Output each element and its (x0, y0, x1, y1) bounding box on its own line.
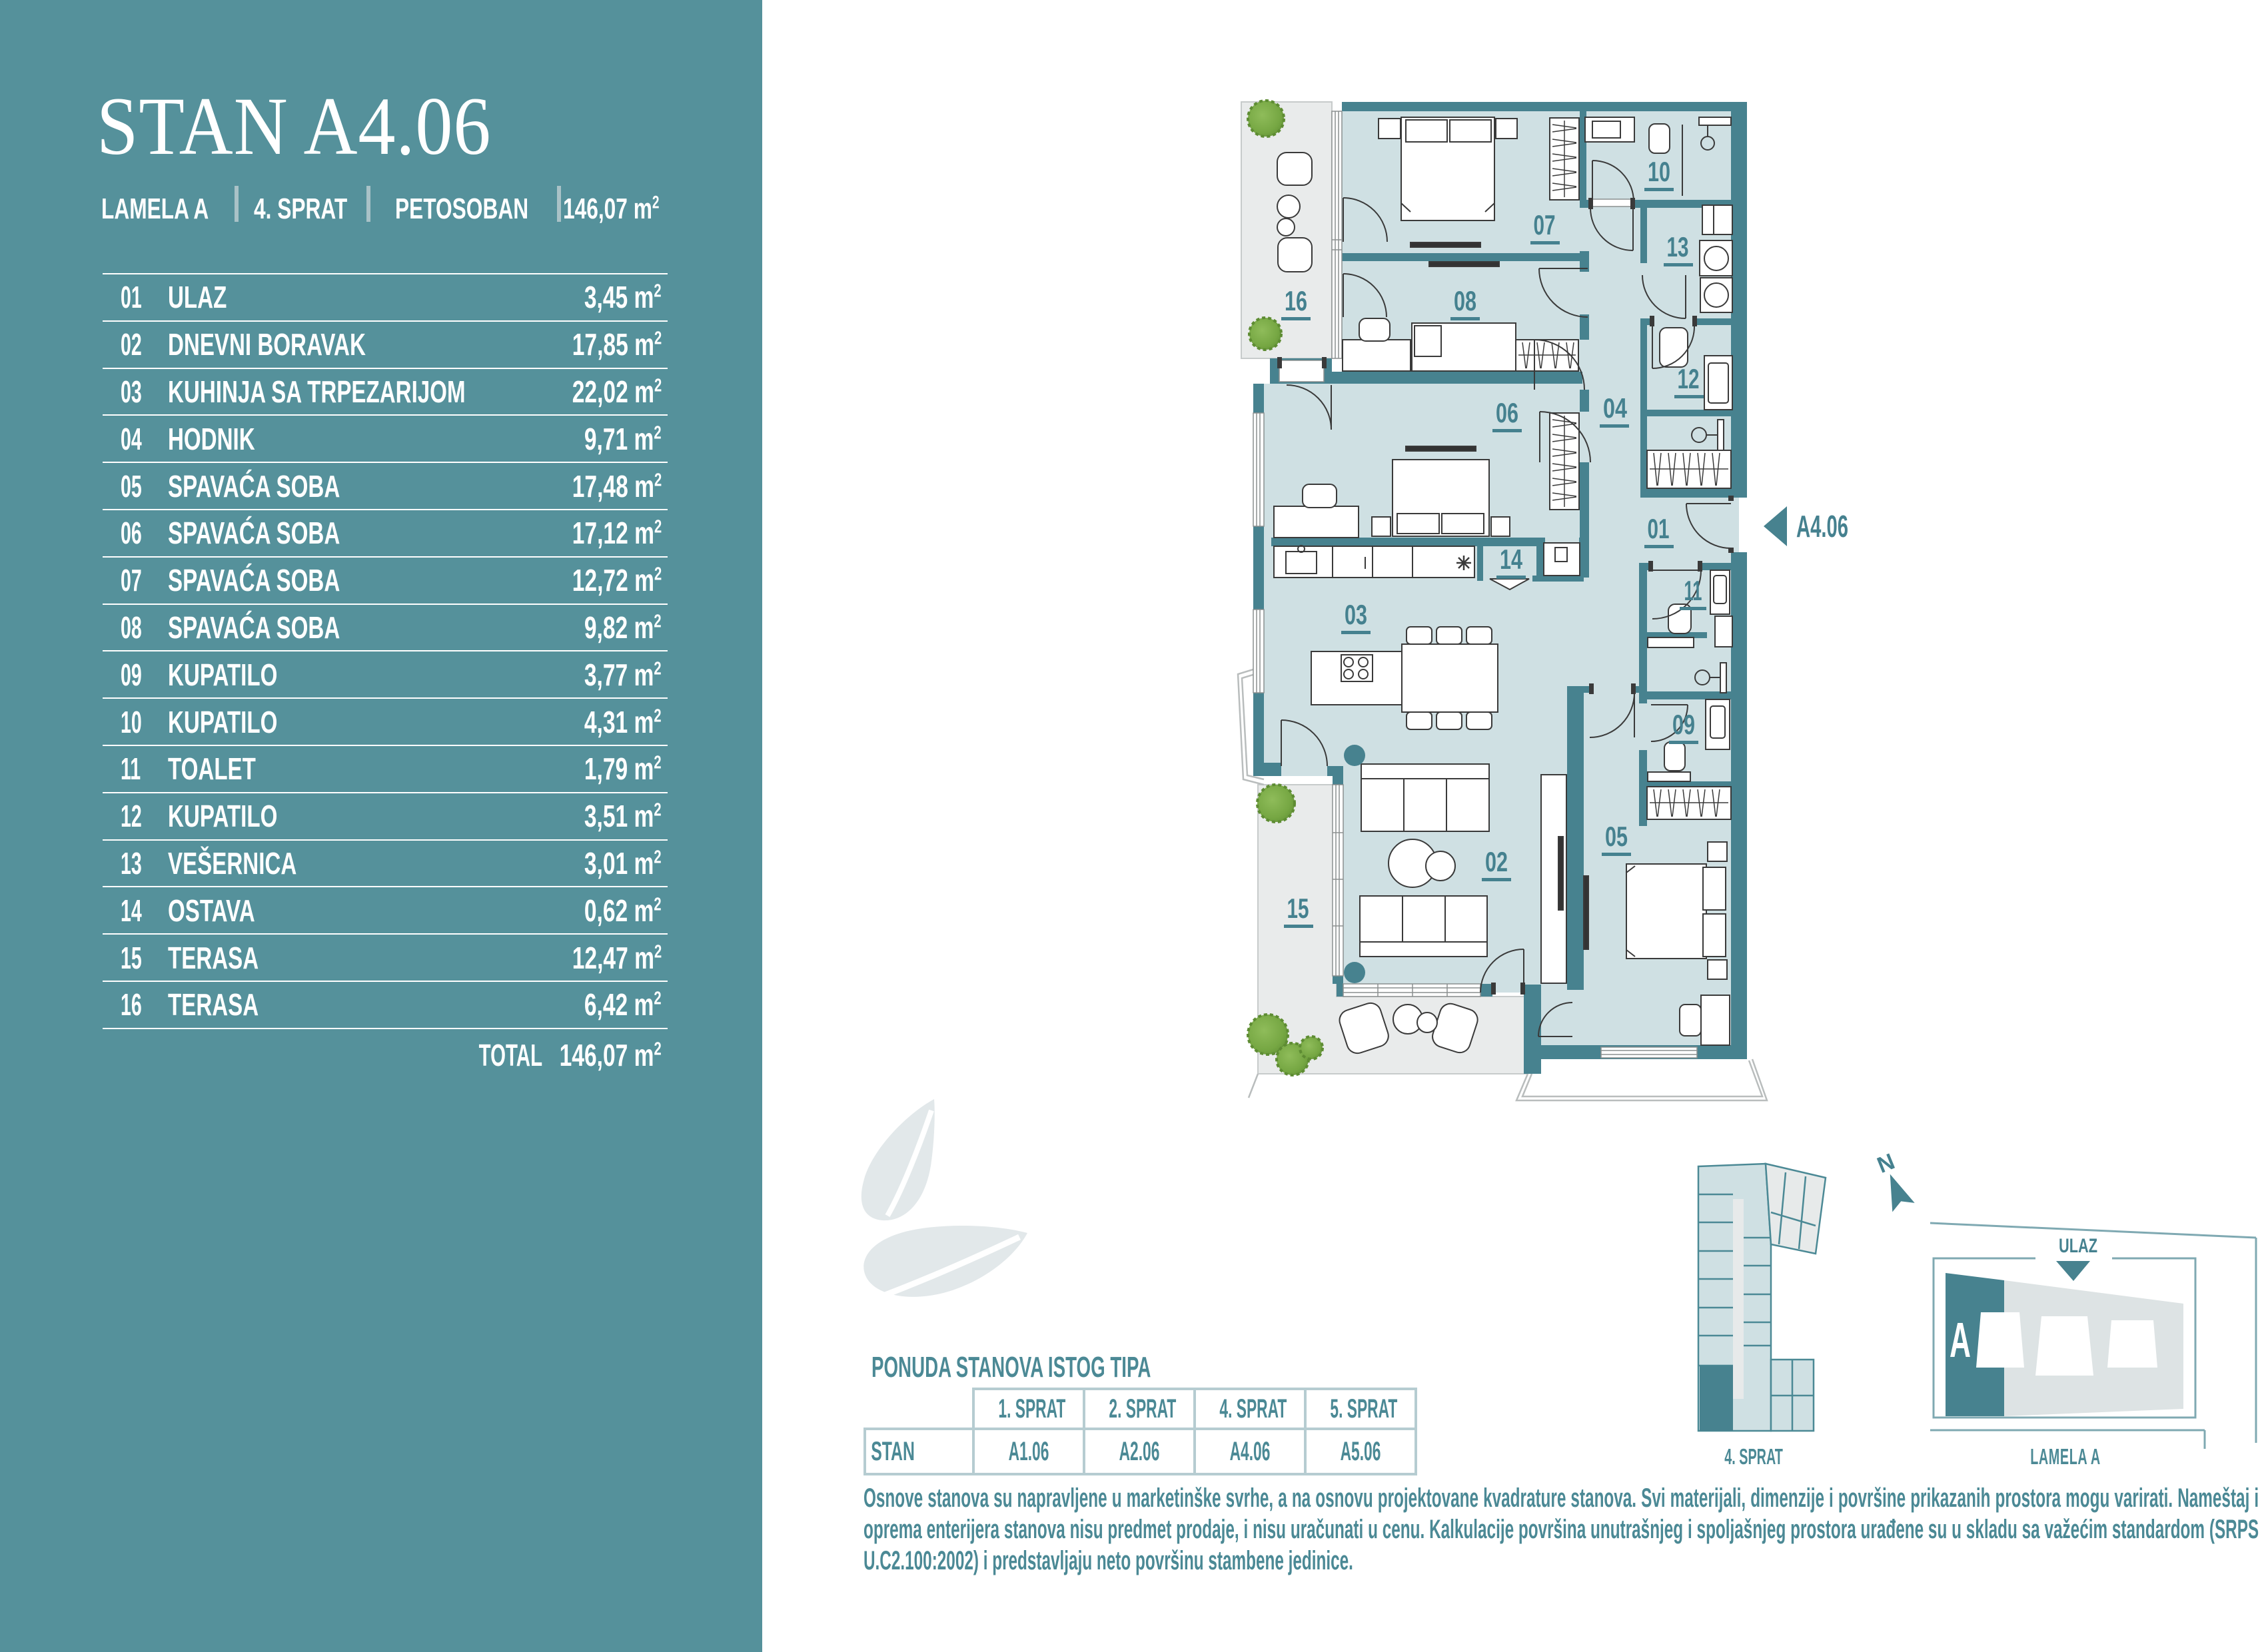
svg-text:06: 06 (1496, 397, 1518, 428)
svg-text:A4.06: A4.06 (1796, 509, 1848, 544)
svg-text:N: N (1874, 1149, 1898, 1178)
svg-text:15: 15 (1287, 893, 1309, 924)
svg-text:14: 14 (1500, 544, 1522, 575)
svg-text:10: 10 (1648, 156, 1670, 187)
svg-text:16: 16 (1285, 285, 1307, 316)
svg-text:08: 08 (1454, 285, 1476, 316)
svg-text:11: 11 (1684, 575, 1702, 606)
svg-text:02: 02 (1485, 846, 1508, 877)
svg-text:13: 13 (1667, 231, 1689, 262)
svg-text:12: 12 (1678, 363, 1700, 394)
svg-text:01: 01 (1648, 513, 1670, 544)
svg-text:ULAZ: ULAZ (2059, 1235, 2097, 1257)
svg-text:05: 05 (1605, 821, 1628, 852)
svg-text:07: 07 (1534, 209, 1556, 240)
svg-text:09: 09 (1672, 709, 1695, 740)
svg-text:A: A (1950, 1312, 1971, 1368)
svg-text:04: 04 (1603, 392, 1627, 424)
svg-text:03: 03 (1345, 599, 1367, 630)
